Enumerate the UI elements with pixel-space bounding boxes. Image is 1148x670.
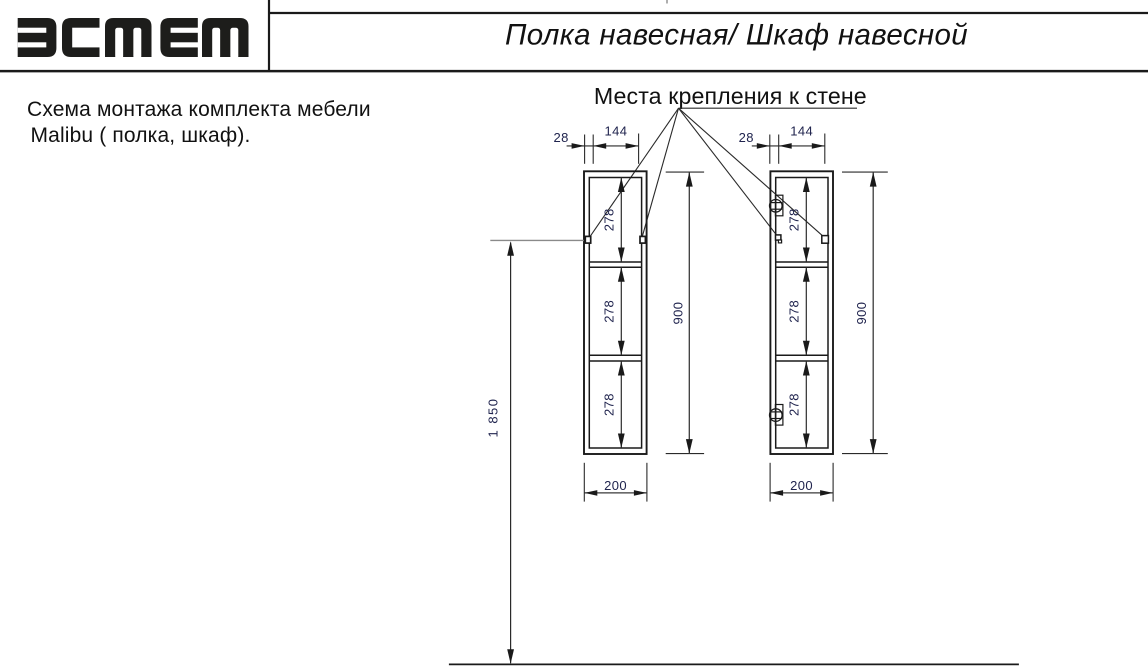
svg-text:278: 278 (786, 393, 801, 416)
svg-text:28: 28 (739, 130, 754, 145)
svg-text:Схема монтажа комплекта мебели: Схема монтажа комплекта мебели (27, 98, 371, 121)
svg-text:900: 900 (854, 302, 869, 325)
svg-text:Полка навесная/ Шкаф навесной: Полка навесная/ Шкаф навесной (505, 19, 968, 52)
svg-text:1 850: 1 850 (486, 397, 501, 437)
svg-text:200: 200 (790, 478, 813, 493)
svg-text:278: 278 (601, 300, 616, 323)
svg-text:144: 144 (604, 123, 627, 138)
svg-text:900: 900 (670, 302, 685, 325)
svg-text:278: 278 (786, 208, 801, 231)
svg-text:Malibu ( полка, шкаф).: Malibu ( полка, шкаф). (31, 124, 251, 147)
svg-text:200: 200 (604, 478, 627, 493)
svg-text:278: 278 (786, 300, 801, 323)
svg-text:278: 278 (601, 393, 616, 416)
svg-text:278: 278 (601, 208, 616, 231)
svg-text:28: 28 (553, 130, 568, 145)
svg-text:144: 144 (790, 123, 813, 138)
svg-text:Места крепления к стене: Места крепления к стене (594, 83, 867, 109)
